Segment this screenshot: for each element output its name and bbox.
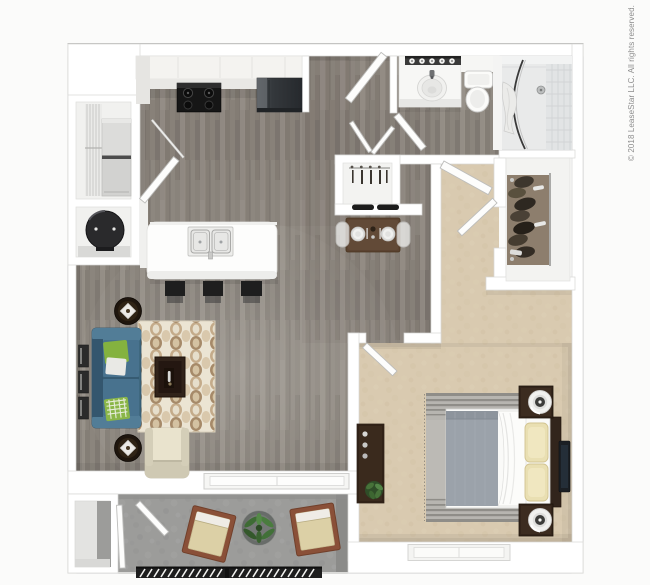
svg-text:© 2018 LeaseStar LLC. All righ: © 2018 LeaseStar LLC. All rights reserve… xyxy=(627,5,636,161)
